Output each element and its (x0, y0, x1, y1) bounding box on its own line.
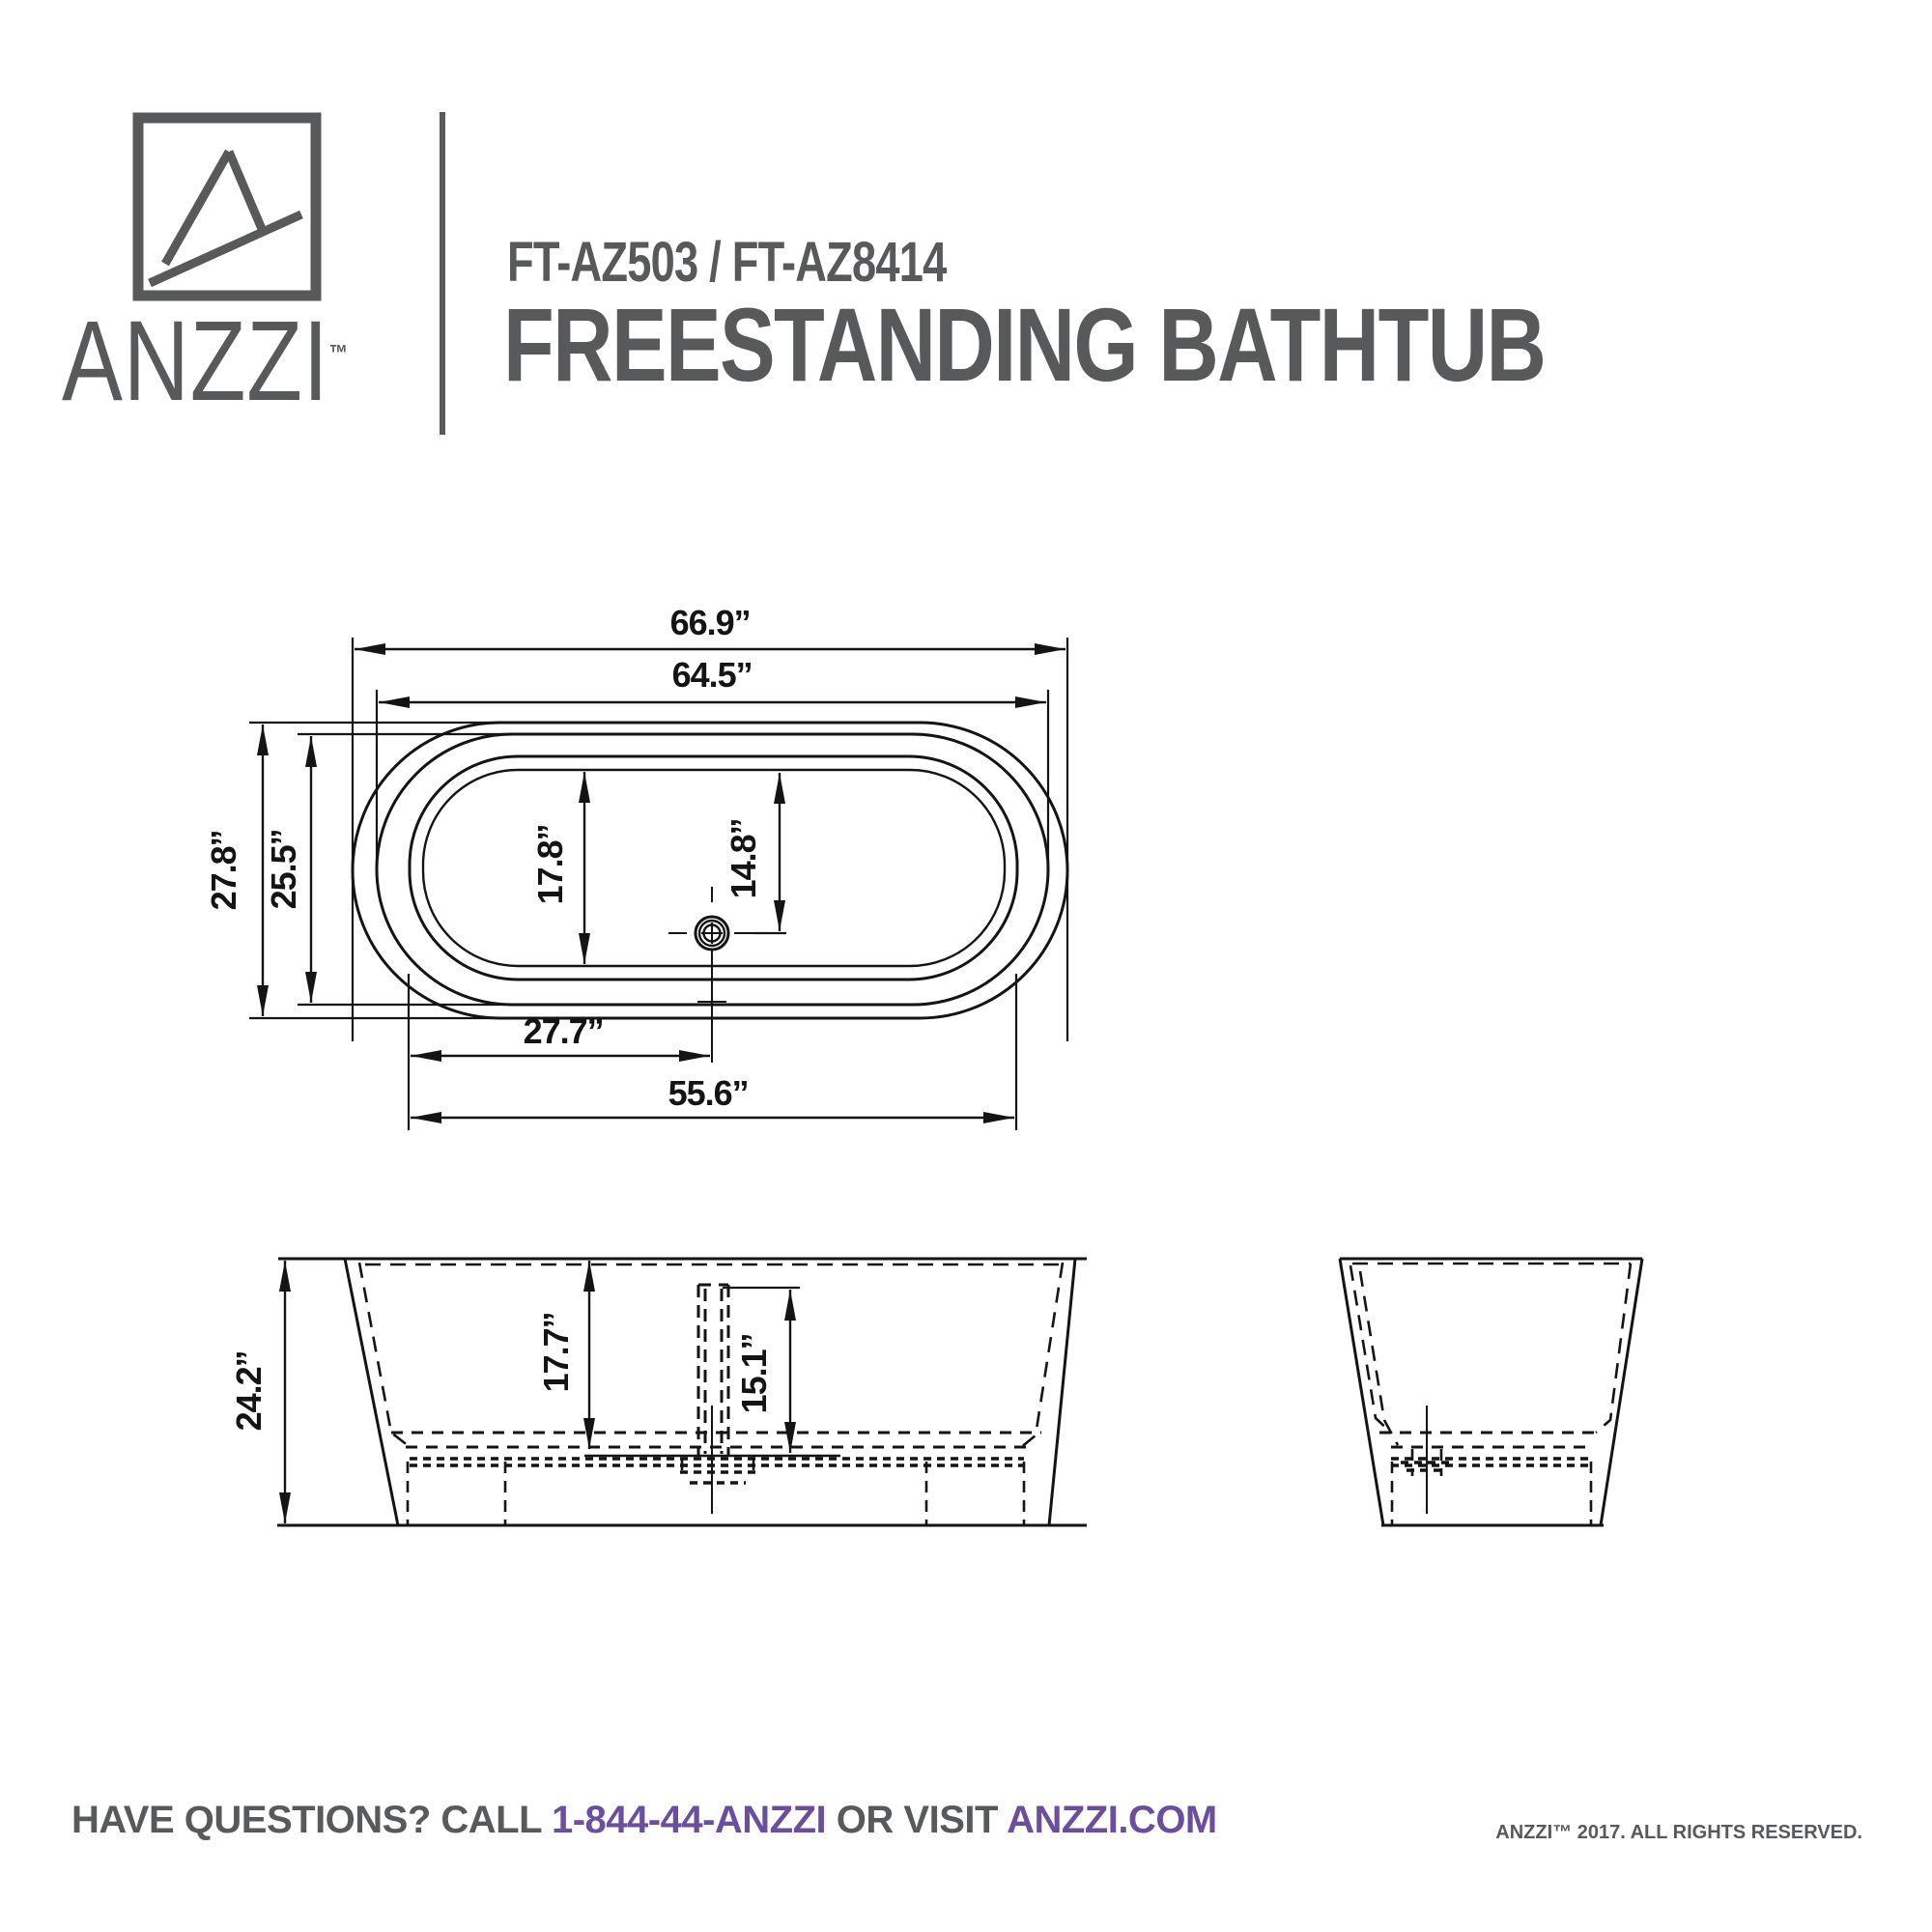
dim-label-rim-length: 64.5’’ (672, 655, 753, 695)
dim-interior-depth: 17.7’’ (536, 1261, 589, 1449)
dim-label-overall-height: 24.2’’ (229, 1351, 269, 1432)
footer-or-visit-text: OR VISIT (837, 1799, 998, 1841)
dim-label-drain-offset: 14.8’’ (724, 819, 763, 899)
dim-label-basin-width: 17.8’’ (530, 825, 570, 905)
spec-sheet-page: ANZZI™ FT-AZ503 / FT-AZ8414 FREESTANDING… (0, 0, 1932, 1932)
side-right-hidden-wall (1596, 1264, 1631, 1433)
front-right-hidden-wall (1020, 1263, 1063, 1448)
dim-label-basin-length: 55.6’’ (668, 1073, 749, 1113)
dim-label-drain-from-end: 27.7’’ (524, 1011, 604, 1051)
dim-drain-from-end: 27.7’’ (409, 974, 710, 1130)
front-left-wall (345, 1259, 398, 1525)
dim-label-overall-length: 66.9’’ (670, 603, 751, 642)
front-view: 24.2’’ 17.7’’ 15.1’’ (229, 1259, 1087, 1525)
front-left-hidden-wall (359, 1263, 409, 1446)
side-right-wall (1601, 1259, 1642, 1525)
dim-rim-width: 25.5’’ (264, 734, 517, 1005)
dim-label-overall-width: 27.8’’ (204, 831, 243, 911)
drain-top-view (668, 887, 753, 1063)
basin-inner-edge (423, 770, 1005, 966)
dim-drain-offset: 14.8’’ (724, 773, 786, 933)
dim-label-rim-width: 25.5’’ (264, 830, 303, 910)
side-left-hidden-wall-1 (1350, 1265, 1391, 1433)
dim-basin-length: 55.6’’ (411, 974, 1016, 1130)
footer-website-link[interactable]: ANZZI.COM (1007, 1799, 1217, 1841)
top-view: 66.9’’ 64.5’’ 27.8’’ 25.5’’ (204, 603, 1067, 1130)
tub-outer-rim (353, 723, 1067, 1018)
side-view (1340, 1259, 1642, 1525)
side-left-wall (1340, 1259, 1383, 1525)
dim-label-interior-depth: 17.7’’ (536, 1313, 576, 1393)
footer-question-text: HAVE QUESTIONS? CALL (71, 1799, 541, 1841)
dim-overall-height: 24.2’’ (229, 1261, 285, 1523)
dim-drain-depth: 15.1’’ (723, 1288, 800, 1453)
technical-drawing: 66.9’’ 64.5’’ 27.8’’ 25.5’’ (0, 0, 1932, 1932)
front-right-wall (1049, 1259, 1075, 1525)
footer-contact: HAVE QUESTIONS? CALL 1-844-44-ANZZI OR V… (71, 1799, 1217, 1842)
dim-basin-width: 17.8’’ (530, 772, 584, 964)
footer-phone-link[interactable]: 1-844-44-ANZZI (552, 1799, 826, 1841)
dim-label-drain-depth: 15.1’’ (734, 1334, 774, 1414)
copyright-notice: ANZZI™ 2017. ALL RIGHTS RESERVED. (1495, 1822, 1862, 1844)
front-drain-pipe (584, 1285, 840, 1514)
